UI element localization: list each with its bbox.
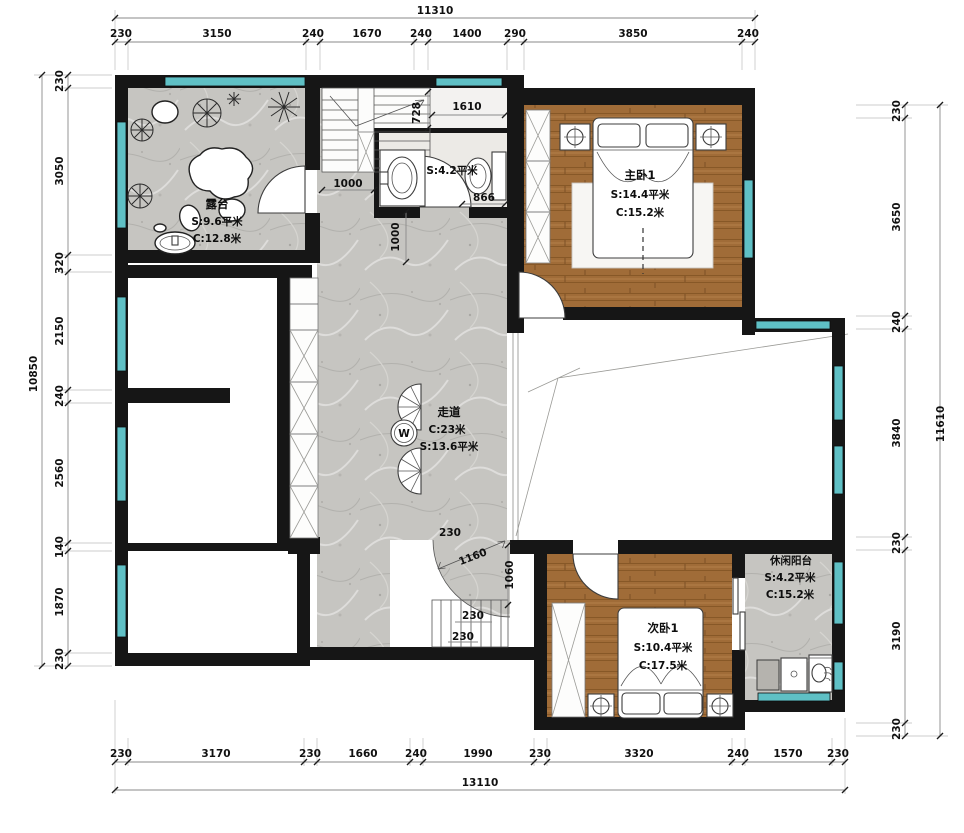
dim-bottom-seg-5: 1990 <box>463 748 492 760</box>
balcony-bottom-window <box>758 693 830 701</box>
rock-icon <box>152 101 178 123</box>
dim-left-seg-3: 2150 <box>54 316 66 345</box>
dim-1000-h: 1000 <box>333 178 362 190</box>
dim-left-seg-7: 1870 <box>54 587 66 616</box>
dim-bottom-seg-8: 240 <box>727 748 749 760</box>
void-room-floor <box>518 332 832 540</box>
dim-1060: 1060 <box>504 560 516 589</box>
room-left-window-2 <box>117 427 126 501</box>
dim-bottom-seg-6: 230 <box>529 748 551 760</box>
room-left-window-3 <box>117 565 126 637</box>
dim-right-total: 11610 <box>935 406 947 443</box>
terrace-left-window <box>117 122 126 228</box>
stone-icon <box>154 224 166 232</box>
second-bedroom-label: 次卧1 <box>647 621 678 635</box>
master-pillow-left <box>598 124 640 147</box>
master-right-window <box>744 180 753 258</box>
hall-closet <box>290 278 318 538</box>
balcony-label: 休闲阳台 <box>769 554 812 567</box>
dim-bottom-seg-0: 230 <box>110 748 132 760</box>
bathroom-area: S:4.2平米 <box>426 164 478 177</box>
floor-drain-mark: W <box>398 428 410 440</box>
second-bedroom-area: S:10.4平米 <box>634 641 693 654</box>
terrace-label: 露台 <box>206 197 229 211</box>
void-top-window <box>756 321 830 329</box>
second-bedroom-wardrobe <box>552 603 585 717</box>
dim-left-seg-8: 230 <box>54 648 66 670</box>
dim-top-seg-8: 240 <box>737 28 759 40</box>
balcony-area: S:4.2平米 <box>764 571 816 584</box>
balcony-sliding-door-panel-1 <box>733 578 738 614</box>
balcony-cabinet <box>757 660 779 690</box>
dim-top-seg-3: 1670 <box>352 28 381 40</box>
void-right-window-1 <box>834 366 843 420</box>
dim-left-seg-4: 240 <box>54 385 66 407</box>
room-left-window-1 <box>117 297 126 371</box>
dim-bottom-seg-1: 3170 <box>201 748 230 760</box>
dim-left-seg-0: 230 <box>54 70 66 92</box>
dim-bottom-seg-4: 240 <box>405 748 427 760</box>
floor-drain-icon: W <box>391 420 417 446</box>
dim-top-seg-2: 240 <box>302 28 324 40</box>
dim-bottom-seg-9: 1570 <box>773 748 802 760</box>
pond-icon <box>155 232 195 254</box>
master-bedroom-perimeter: C:15.2米 <box>616 206 665 219</box>
dim-top-seg-6: 290 <box>504 28 526 40</box>
terrace-perimeter: C:12.8米 <box>193 232 242 245</box>
dim-top-seg-0: 230 <box>110 28 132 40</box>
second-pillow-right <box>664 693 702 714</box>
balcony-counter <box>781 658 807 691</box>
corridor-area: S:13.6平米 <box>420 440 479 453</box>
tree-icon <box>128 184 152 208</box>
terrace-area: S:9.6平米 <box>191 215 243 228</box>
corridor-label: 走道 <box>437 405 461 419</box>
floor-plan-page: 11310 230 3150 240 1670 240 1400 290 385… <box>0 0 964 833</box>
dimensions-top: 11310 230 3150 240 1670 240 1400 290 385… <box>110 5 759 70</box>
dim-728: 728 <box>411 102 423 124</box>
dim-230-b: 230 <box>462 610 484 622</box>
dim-bottom-seg-10: 230 <box>827 748 849 760</box>
master-pillow-right <box>646 124 688 147</box>
tree-icon <box>193 99 221 127</box>
dim-1610: 1610 <box>452 101 481 113</box>
dim-right-seg-6: 230 <box>891 718 903 740</box>
dim-top-seg-7: 3850 <box>618 28 647 40</box>
master-wardrobe <box>526 110 550 263</box>
balcony-right-window-2 <box>834 662 843 690</box>
second-bedroom-perimeter: C:17.5米 <box>639 659 688 672</box>
balcony-right-window <box>834 562 843 624</box>
balcony-sliding-door-panel-2 <box>740 612 745 650</box>
second-pillow-left <box>622 693 660 714</box>
dim-230-a: 230 <box>439 527 461 539</box>
void-right-window-2 <box>834 446 843 494</box>
master-bedroom-label: 主卧1 <box>624 168 655 182</box>
bathroom-window <box>436 78 502 86</box>
dim-top-total: 11310 <box>417 5 454 17</box>
corridor-perimeter: C:23米 <box>428 423 466 436</box>
dimensions-right: 11610 230 3650 240 3840 230 3190 230 <box>856 100 948 740</box>
floor-plan-drawing: 11310 230 3150 240 1670 240 1400 290 385… <box>0 0 964 833</box>
dim-bottom-seg-2: 230 <box>299 748 321 760</box>
dim-top-seg-5: 1400 <box>452 28 481 40</box>
balcony-perimeter: C:15.2米 <box>766 588 815 601</box>
dim-230-c: 230 <box>452 631 474 643</box>
dim-top-seg-4: 240 <box>410 28 432 40</box>
dim-right-seg-0: 230 <box>891 100 903 122</box>
dim-right-seg-2: 240 <box>891 311 903 333</box>
dim-left-seg-1: 3050 <box>54 156 66 185</box>
master-bedroom-area: S:14.4平米 <box>611 188 670 201</box>
dim-bottom-seg-7: 3320 <box>624 748 653 760</box>
dim-1000-v: 1000 <box>390 222 402 251</box>
sink-basin-icon <box>812 664 826 682</box>
dim-left-seg-6: 140 <box>54 536 66 558</box>
dimensions-left: 10850 230 3050 320 2150 240 2560 140 187… <box>28 70 112 670</box>
dim-866: 866 <box>473 192 495 204</box>
terrace-top-window <box>165 77 305 86</box>
dim-left-total: 10850 <box>28 356 40 393</box>
dim-left-seg-2: 320 <box>54 252 66 274</box>
dim-right-seg-5: 3190 <box>891 621 903 650</box>
dim-right-seg-4: 230 <box>891 532 903 554</box>
dim-bottom-total: 13110 <box>462 777 499 789</box>
dim-bottom-seg-3: 1660 <box>348 748 377 760</box>
shrub-icon <box>227 92 241 106</box>
dim-top-seg-1: 3150 <box>202 28 231 40</box>
balcony-fixtures <box>757 655 832 692</box>
tree-icon <box>131 119 153 141</box>
dim-left-seg-5: 2560 <box>54 458 66 487</box>
dim-right-seg-3: 3840 <box>891 418 903 447</box>
dim-right-seg-1: 3650 <box>891 202 903 231</box>
